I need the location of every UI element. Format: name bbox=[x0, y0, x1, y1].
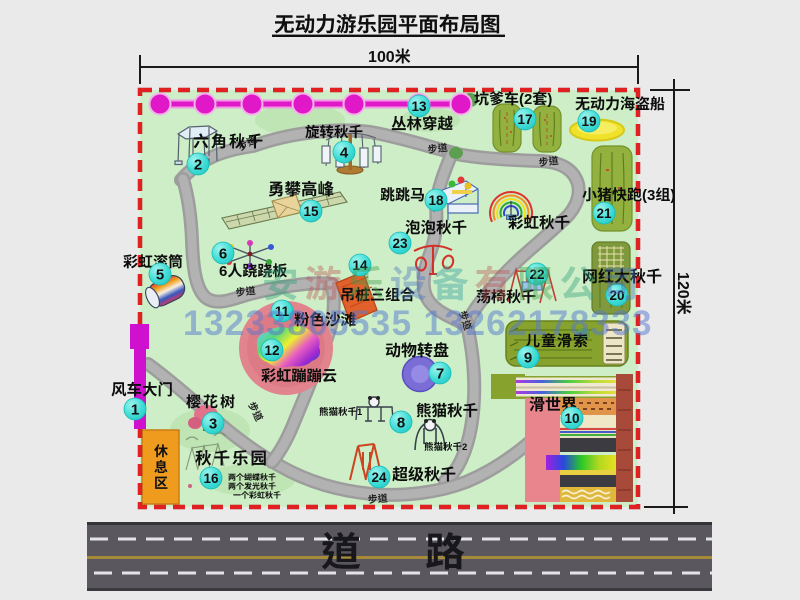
svg-text:1: 1 bbox=[528, 304, 547, 343]
svg-text:6: 6 bbox=[219, 263, 227, 280]
svg-text:12: 12 bbox=[264, 343, 279, 358]
svg-text:17: 17 bbox=[517, 112, 532, 127]
svg-text:1: 1 bbox=[357, 407, 363, 418]
svg-text:2: 2 bbox=[225, 304, 244, 343]
svg-text:1: 1 bbox=[368, 49, 377, 66]
svg-text:): ) bbox=[547, 91, 552, 108]
svg-text:0: 0 bbox=[674, 290, 691, 299]
svg-text:(: ( bbox=[642, 187, 647, 204]
svg-text:15: 15 bbox=[303, 204, 319, 219]
svg-text:8: 8 bbox=[287, 304, 306, 343]
svg-text:10: 10 bbox=[564, 411, 579, 426]
svg-text:1: 1 bbox=[423, 304, 442, 343]
svg-text:3: 3 bbox=[371, 304, 390, 343]
svg-text:2: 2 bbox=[462, 442, 467, 453]
svg-text:2: 2 bbox=[524, 91, 532, 108]
svg-text:2: 2 bbox=[507, 304, 526, 343]
svg-text:13: 13 bbox=[411, 99, 427, 114]
svg-text:8: 8 bbox=[397, 414, 405, 431]
svg-text:5: 5 bbox=[329, 304, 348, 343]
svg-text:16: 16 bbox=[203, 471, 219, 486]
svg-text:6: 6 bbox=[219, 245, 227, 262]
svg-text:3: 3 bbox=[444, 304, 463, 343]
svg-text:3: 3 bbox=[204, 304, 223, 343]
svg-text:1: 1 bbox=[674, 272, 691, 281]
svg-text:23: 23 bbox=[392, 236, 408, 251]
svg-text:7: 7 bbox=[436, 365, 444, 382]
svg-text:5: 5 bbox=[392, 304, 411, 343]
svg-text:3: 3 bbox=[266, 304, 285, 343]
svg-text:4: 4 bbox=[340, 144, 349, 161]
svg-text:18: 18 bbox=[428, 193, 444, 208]
svg-text:19: 19 bbox=[581, 114, 596, 129]
svg-text:0: 0 bbox=[377, 49, 386, 66]
svg-text:24: 24 bbox=[371, 470, 387, 485]
svg-text:1: 1 bbox=[183, 304, 202, 343]
svg-text:3: 3 bbox=[632, 304, 651, 343]
svg-text:3: 3 bbox=[647, 187, 655, 204]
svg-text:2: 2 bbox=[674, 281, 691, 290]
svg-text:): ) bbox=[670, 187, 675, 204]
svg-text:9: 9 bbox=[524, 349, 532, 366]
svg-text:6: 6 bbox=[486, 304, 505, 343]
svg-text:(: ( bbox=[519, 91, 524, 108]
svg-text:7: 7 bbox=[549, 304, 568, 343]
svg-text:2: 2 bbox=[194, 156, 202, 173]
svg-text:5: 5 bbox=[156, 266, 164, 283]
svg-text:8: 8 bbox=[570, 304, 589, 343]
svg-text:5: 5 bbox=[350, 304, 369, 343]
svg-text:3: 3 bbox=[209, 415, 217, 432]
svg-text:21: 21 bbox=[596, 206, 612, 221]
svg-text:0: 0 bbox=[386, 49, 395, 66]
svg-text:0: 0 bbox=[308, 304, 327, 343]
svg-text:3: 3 bbox=[611, 304, 630, 343]
svg-text:2: 2 bbox=[465, 304, 484, 343]
svg-text:3: 3 bbox=[246, 304, 265, 343]
svg-text:3: 3 bbox=[590, 304, 609, 343]
svg-text:1: 1 bbox=[131, 401, 139, 418]
